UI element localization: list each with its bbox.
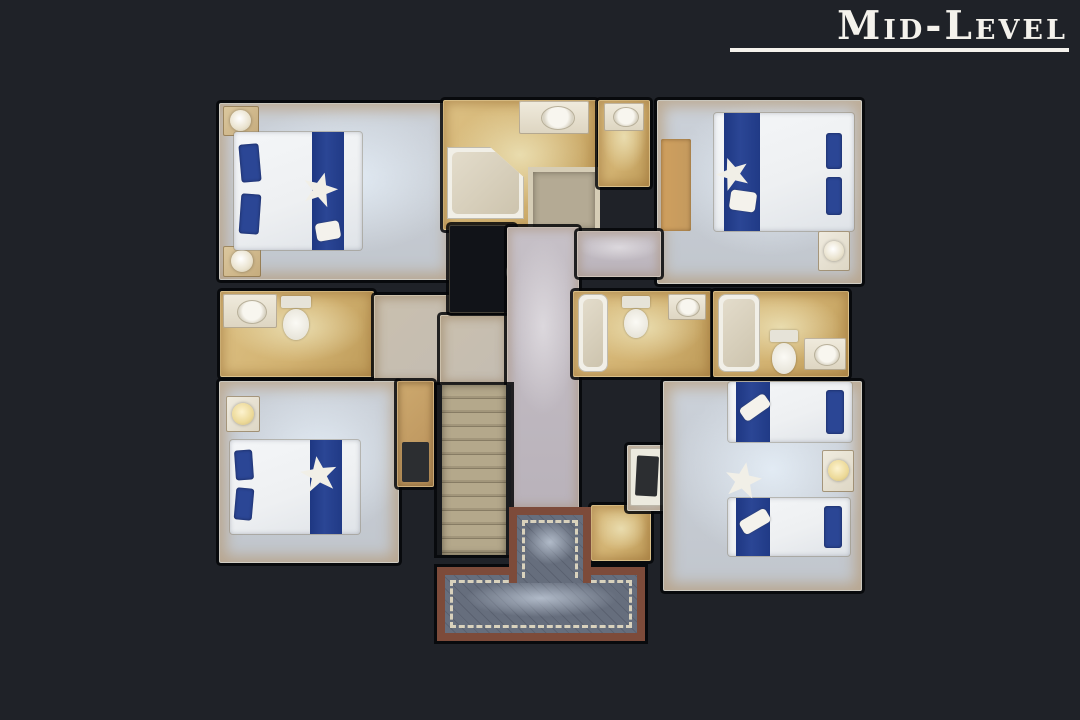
bathtub	[578, 294, 608, 372]
vanity	[804, 338, 846, 370]
starfish-rug	[721, 459, 765, 503]
toilet-bowl	[283, 309, 309, 340]
bathroom-center	[573, 291, 711, 377]
double-bed	[234, 132, 362, 250]
nightstand	[822, 450, 854, 492]
bedroom-bottom-right	[663, 381, 862, 591]
vanity	[604, 103, 644, 131]
bathroom-right	[713, 291, 849, 377]
throw-pillow	[729, 189, 758, 212]
sink	[814, 344, 840, 366]
toilet-tank	[281, 296, 311, 308]
toilet-bowl	[772, 343, 797, 374]
dresser	[661, 139, 691, 231]
tub-basin	[723, 299, 755, 367]
pillow	[234, 449, 254, 480]
tiled-foyer-stem	[509, 507, 591, 583]
staircase	[437, 385, 511, 555]
sink	[541, 106, 575, 130]
master-bathroom	[443, 100, 597, 230]
bathtub	[447, 147, 524, 219]
nightstand	[226, 396, 260, 432]
shower	[528, 167, 600, 234]
pillow	[234, 487, 255, 520]
lamp	[824, 241, 844, 261]
pillow	[826, 390, 844, 434]
toilet	[622, 296, 650, 338]
closet-room	[591, 505, 651, 561]
toilet	[281, 296, 311, 340]
stairwell-opening	[449, 225, 515, 313]
viewer-background: Mid-Level	[0, 0, 1080, 720]
hallway	[507, 227, 579, 509]
sink	[676, 298, 700, 317]
bedroom-top-left	[219, 103, 453, 280]
tub-basin	[452, 152, 519, 214]
pillow	[239, 193, 262, 234]
pillow	[824, 506, 842, 548]
twin-bed-lower	[728, 498, 850, 556]
vanity	[519, 101, 589, 134]
bedroom-top-right	[657, 100, 862, 284]
vanity	[668, 294, 706, 320]
closet-contents	[635, 455, 659, 496]
double-bed	[230, 440, 360, 534]
bedroom-bottom-left	[219, 381, 399, 563]
tile-accent-border	[522, 520, 578, 578]
stair-approach	[440, 315, 508, 385]
floor-title: Mid-Level	[730, 7, 1069, 52]
sink	[237, 300, 267, 324]
lamp	[230, 110, 251, 131]
pillow	[238, 143, 261, 183]
sink	[613, 107, 639, 127]
landing	[374, 295, 450, 383]
tile-accent-border	[450, 580, 632, 628]
nightstand	[223, 246, 261, 277]
twin-bed-upper	[728, 382, 852, 442]
lamp	[828, 460, 849, 481]
toilet-tank	[622, 296, 650, 308]
toilet-tank	[770, 330, 798, 342]
pillow	[826, 177, 842, 215]
bathroom-left	[220, 291, 374, 377]
lamp	[232, 403, 254, 425]
vanity	[223, 294, 277, 328]
water-closet	[598, 100, 650, 187]
tub-basin	[583, 299, 603, 367]
lamp	[231, 250, 253, 272]
pillow	[826, 133, 842, 169]
toilet-bowl	[624, 309, 649, 338]
floorplan[interactable]	[215, 95, 868, 640]
floor-title-text: Mid-Level	[837, 3, 1068, 49]
bathtub	[718, 294, 760, 372]
closet-contents	[402, 442, 429, 482]
nightstand	[818, 231, 850, 271]
toilet	[770, 330, 798, 374]
hallway-arm	[577, 231, 661, 277]
double-bed	[714, 113, 854, 231]
closet-nook	[397, 381, 434, 487]
